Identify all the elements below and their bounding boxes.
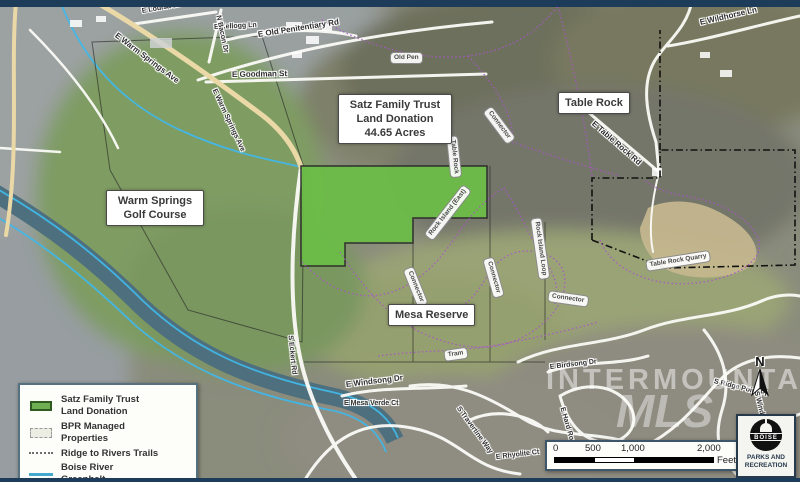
- boise-parks-logo: BOISE PARKS AND RECREATION: [736, 414, 796, 478]
- legend-trail-swatch: [28, 452, 54, 454]
- watermark-mls: MLS: [616, 384, 713, 438]
- logo-dept-line1: PARKS AND: [745, 454, 788, 462]
- satz-line2: Land Donation: [345, 112, 445, 126]
- legend-label: BPR Managed: [61, 421, 125, 433]
- legend-bpr-swatch: [28, 428, 54, 438]
- scale-tick: 0: [553, 443, 558, 454]
- warm-springs-golf-label: Warm Springs Golf Course: [106, 190, 204, 226]
- legend-item-satz: Satz Family Trust Land Donation: [28, 394, 188, 418]
- street-label: E Goodman St: [232, 69, 287, 79]
- table-rock-label: Table Rock: [558, 92, 630, 114]
- legend-label: Satz Family Trust: [61, 394, 139, 406]
- map-legend: Satz Family Trust Land Donation BPR Mana…: [18, 383, 198, 482]
- legend-label: Ridge to Rivers Trails: [61, 448, 158, 460]
- scale-tick: 1,000: [621, 443, 645, 454]
- logo-dept-line2: RECREATION: [745, 462, 788, 470]
- warm-springs-line1: Warm Springs: [113, 194, 197, 208]
- map-canvas[interactable]: INTERMOUNTAIN MLS Satz Family Trust Land…: [0, 0, 800, 482]
- scale-unit: Feet: [717, 455, 736, 466]
- bottom-frame-bar: [0, 478, 800, 482]
- satz-line1: Satz Family Trust: [345, 98, 445, 112]
- legend-greenbelt-swatch: [28, 473, 54, 476]
- mesa-reserve-label: Mesa Reserve: [388, 304, 475, 326]
- legend-green-swatch: [28, 401, 54, 411]
- street-label: E Mesa Verde Ct: [344, 400, 398, 407]
- north-arrow-icon: [751, 369, 769, 397]
- trail-label: Old Pen: [390, 52, 423, 64]
- warm-springs-line2: Golf Course: [113, 208, 197, 222]
- scale-tick: 500: [585, 443, 601, 454]
- legend-item-bpr: BPR Managed Properties: [28, 421, 188, 445]
- boise-wordmark: BOISE: [750, 433, 782, 441]
- top-frame-bar: [0, 0, 800, 7]
- satz-parcel-label: Satz Family Trust Land Donation 44.65 Ac…: [338, 94, 452, 144]
- legend-label: Boise River: [61, 462, 113, 474]
- legend-label: Properties: [61, 433, 125, 445]
- scale-tick: 2,000: [697, 443, 721, 454]
- scale-bar: 0 500 1,000 2,000 Feet: [545, 440, 743, 471]
- satz-line3: 44.65 Acres: [345, 126, 445, 140]
- legend-item-trails: Ridge to Rivers Trails: [28, 448, 188, 460]
- legend-label: Land Donation: [61, 406, 139, 418]
- scale-bar-segments: [554, 457, 714, 463]
- boise-capitol-icon: BOISE: [750, 419, 782, 451]
- north-arrow: N: [748, 354, 772, 402]
- north-label: N: [748, 354, 772, 369]
